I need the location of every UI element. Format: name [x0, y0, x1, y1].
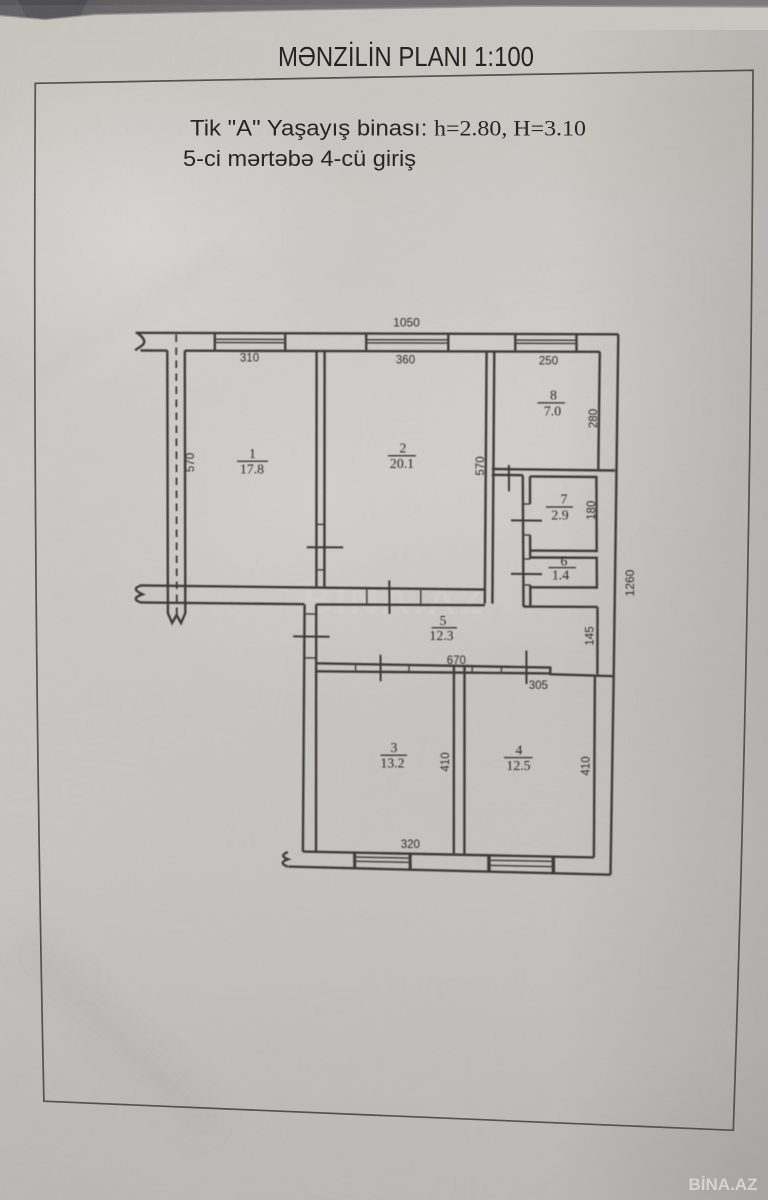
svg-text:12.3: 12.3: [429, 628, 453, 643]
svg-text:4: 4: [516, 742, 523, 757]
svg-text:410: 410: [440, 752, 452, 771]
svg-text:570: 570: [185, 453, 197, 472]
svg-text:2.9: 2.9: [551, 508, 568, 523]
svg-text:310: 310: [240, 353, 259, 365]
svg-text:5: 5: [440, 613, 447, 628]
svg-text:1260: 1260: [623, 569, 637, 596]
svg-text:Tik "A" Yaşayış binası: h=2.80: Tik "A" Yaşayış binası: h=2.80, H=3.10: [190, 116, 586, 141]
svg-text:20.1: 20.1: [390, 456, 414, 471]
svg-text:1.4: 1.4: [552, 568, 569, 583]
svg-text:8: 8: [550, 388, 557, 403]
svg-text:2: 2: [400, 441, 407, 456]
svg-text:670: 670: [447, 655, 466, 667]
svg-text:7: 7: [561, 492, 568, 507]
svg-text:BİNA.AZ: BİNA.AZ: [689, 1175, 758, 1194]
svg-text:13.2: 13.2: [380, 756, 404, 771]
svg-text:MƏNZİLİN PLANI 1:100: MƏNZİLİN PLANI 1:100: [278, 41, 534, 72]
svg-text:180: 180: [586, 501, 598, 520]
svg-text:250: 250: [539, 356, 558, 368]
svg-text:6: 6: [561, 553, 568, 568]
svg-text:320: 320: [401, 839, 420, 851]
svg-text:305: 305: [529, 680, 548, 692]
svg-text:410: 410: [581, 756, 593, 775]
svg-text:3: 3: [391, 740, 398, 755]
svg-text:570: 570: [475, 456, 487, 475]
svg-text:360: 360: [396, 355, 415, 367]
svg-text:1050: 1050: [393, 316, 420, 330]
svg-text:145: 145: [584, 626, 596, 645]
svg-text:5-ci mərtəbə 4-cü giriş: 5-ci mərtəbə 4-cü giriş: [183, 146, 416, 171]
svg-text:7.0: 7.0: [544, 404, 561, 419]
svg-text:1: 1: [249, 446, 256, 461]
svg-text:17.8: 17.8: [240, 462, 264, 477]
svg-text:12.5: 12.5: [506, 758, 530, 773]
svg-text:280: 280: [588, 409, 600, 428]
svg-text:BINA.AZ: BINA.AZ: [303, 579, 486, 623]
